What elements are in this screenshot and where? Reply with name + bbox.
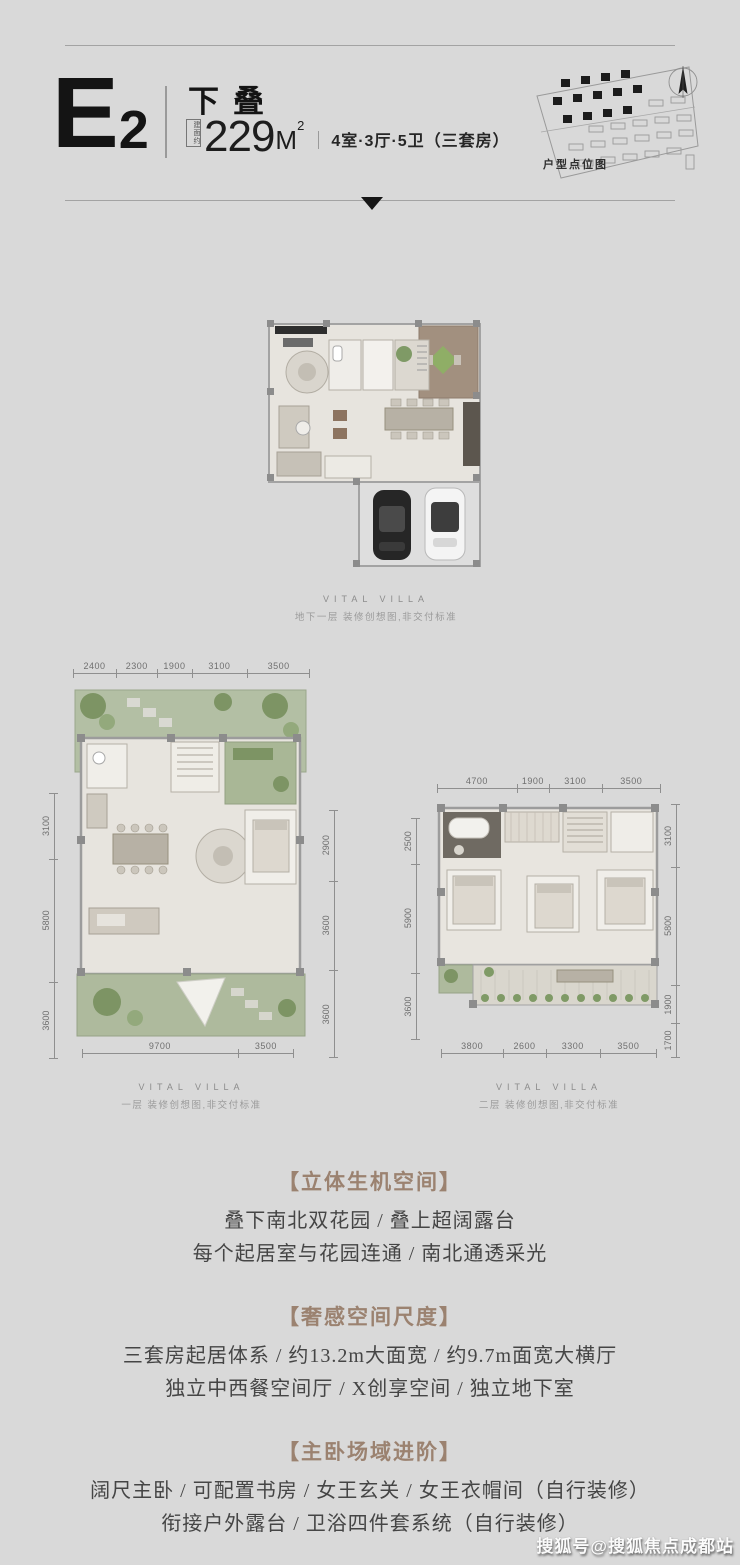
watermark: 搜狐号@搜狐焦点成都站 [536,1532,734,1557]
unit-code: E 2 [52,74,149,152]
first-floor-dims-bottom: 97003500 [82,1040,294,1058]
top-divider [65,45,675,46]
brochure-page: E 2 下叠 建面约 229 M 2 4室·3厅·5卫（三套房） [0,0,740,1565]
area-prefix-label: 建面约 [186,119,201,147]
second-floor-plan [437,800,661,1038]
car-black-icon [373,490,411,560]
site-plan-thumbnail: 户型点位图 [531,60,707,192]
second-floor-dims-bottom: 3800260033003500 [441,1040,657,1058]
area-unit: M [275,127,297,153]
caption-text: 一层 装修创想图,非交付标准 [73,1097,310,1111]
site-map-label: 户型点位图 [543,156,608,172]
second-floor-caption: VITAL VILLA 二层 装修创想图,非交付标准 [437,1082,661,1111]
room-layout-description: 4室·3厅·5卫（三套房） [331,127,509,151]
car-white-icon [425,488,465,560]
unit-letter: E [52,74,117,152]
brand-label: VITAL VILLA [264,594,488,604]
section-title: 【主卧场域进阶】 [0,1436,740,1466]
section-space: 【立体生机空间】 叠下南北双花园 / 叠上超阔露台 每个起居室与花园连通 / 南… [0,1166,740,1271]
first-floor-dims-left: 310058003600 [42,793,58,1059]
compass-icon [669,66,697,98]
section-master: 【主卧场域进阶】 阔尺主卧 / 可配置书房 / 女王玄关 / 女王衣帽间（自行装… [0,1436,740,1541]
section-line: 阔尺主卧 / 可配置书房 / 女王玄关 / 女王衣帽间（自行装修） [0,1475,740,1508]
area-value: 229 [204,118,274,155]
site-plan-icon [531,60,707,192]
section-scale: 【奢感空间尺度】 三套房起居体系 / 约13.2m大面宽 / 约9.7m面宽大横… [0,1301,740,1406]
section-line: 叠下南北双花园 / 叠上超阔露台 [0,1205,740,1238]
section-line: 三套房起居体系 / 约13.2m大面宽 / 约9.7m面宽大横厅 [0,1340,740,1373]
area-row: 建面约 229 M 2 4室·3厅·5卫（三套房） [186,118,510,155]
section-title: 【奢感空间尺度】 [0,1301,740,1331]
first-floor-caption: VITAL VILLA 一层 装修创想图,非交付标准 [73,1082,310,1111]
second-floor-dims-top: 4700190031003500 [437,775,661,793]
brand-label: VITAL VILLA [437,1082,661,1092]
caption-text: 二层 装修创想图,非交付标准 [437,1097,661,1111]
basement-caption: VITAL VILLA 地下一层 装修创想图,非交付标准 [264,594,488,623]
section-line: 每个起居室与花园连通 / 南北通透采光 [0,1238,740,1271]
basement-floor-plan [267,310,485,570]
brand-label: VITAL VILLA [73,1082,310,1092]
section-title: 【立体生机空间】 [0,1166,740,1196]
caption-text: 地下一层 装修创想图,非交付标准 [264,609,488,623]
section-line: 独立中西餐空间厅 / X创享空间 / 独立地下室 [0,1373,740,1406]
first-floor-dims-top: 24002300190031003500 [73,660,310,678]
second-floor-dims-left: 250059003600 [404,818,420,1040]
second-floor-dims-right: 3100580019001700 [664,804,680,1058]
first-floor-plan [73,688,310,1040]
unit-number: 2 [119,109,149,152]
area-divider [318,131,319,149]
feature-sections: 【立体生机空间】 叠下南北双花园 / 叠上超阔露台 每个起居室与花园连通 / 南… [0,1166,740,1565]
down-arrow-icon [361,197,383,210]
area-superscript: 2 [297,118,304,133]
header-vertical-divider [165,86,167,158]
first-floor-dims-right: 290036003600 [322,810,338,1058]
